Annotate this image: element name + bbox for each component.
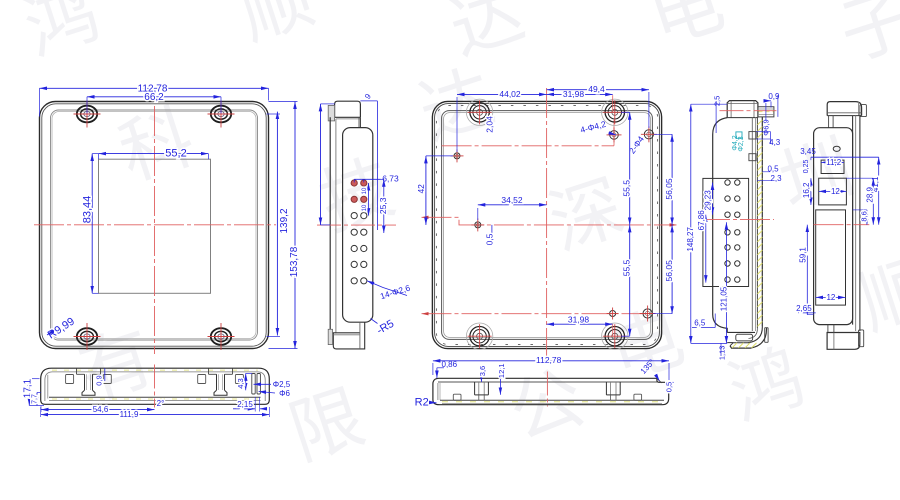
svg-text:25,3: 25,3: [378, 197, 388, 214]
svg-text:55,2: 55,2: [165, 148, 186, 160]
svg-text:Φ6: Φ6: [279, 389, 290, 398]
svg-text:Φ2,3: Φ2,3: [738, 136, 745, 151]
svg-text:限: 限: [280, 377, 373, 475]
svg-text:6,5: 6,5: [694, 319, 706, 328]
svg-text:12,1: 12,1: [497, 363, 506, 378]
svg-text:-R5: -R5: [375, 318, 396, 337]
svg-text:10: 10: [362, 187, 368, 194]
svg-text:0,9: 0,9: [768, 92, 780, 101]
svg-text:9: 9: [363, 92, 373, 101]
svg-text:0,25: 0,25: [803, 159, 810, 173]
svg-text:28,9: 28,9: [866, 186, 875, 202]
svg-text:4,3: 4,3: [769, 138, 781, 147]
svg-text:达: 达: [440, 0, 533, 70]
svg-text:2°: 2°: [157, 399, 165, 408]
svg-text:8,6: 8,6: [859, 211, 868, 221]
svg-text:深: 深: [540, 167, 633, 265]
svg-text:34,52: 34,52: [501, 195, 523, 205]
svg-text:子: 子: [830, 0, 900, 75]
svg-text:153,78: 153,78: [289, 246, 300, 277]
svg-text:2,15: 2,15: [237, 400, 253, 409]
svg-text:59,1: 59,1: [799, 247, 808, 263]
svg-text:公: 公: [500, 357, 593, 455]
svg-text:112,78: 112,78: [536, 355, 562, 365]
svg-text:67,86: 67,86: [697, 210, 706, 231]
svg-text:83,44: 83,44: [82, 196, 94, 224]
svg-text:111,9: 111,9: [120, 410, 139, 419]
svg-text:31,98: 31,98: [563, 89, 585, 99]
svg-text:2,3: 2,3: [770, 174, 782, 183]
svg-text:0,5: 0,5: [665, 382, 674, 392]
svg-text:29,23: 29,23: [703, 190, 712, 211]
svg-text:10: 10: [362, 204, 368, 211]
svg-text:16,2: 16,2: [802, 182, 811, 198]
svg-text:66,2: 66,2: [144, 92, 164, 103]
svg-text:3,6: 3,6: [478, 366, 487, 376]
svg-text:14-Φ2,6: 14-Φ2,6: [379, 283, 412, 302]
svg-text:55,5: 55,5: [622, 180, 632, 197]
svg-text:3,45: 3,45: [800, 147, 816, 156]
svg-text:2,04: 2,04: [485, 116, 495, 133]
svg-text:44,02: 44,02: [499, 89, 521, 99]
svg-text:56,05: 56,05: [664, 260, 674, 282]
svg-text:0,9: 0,9: [95, 375, 104, 385]
svg-text:121,05: 121,05: [719, 286, 728, 311]
svg-text:49,4: 49,4: [588, 84, 605, 94]
svg-text:鸿: 鸿: [720, 337, 813, 435]
svg-text:31,98: 31,98: [568, 315, 590, 325]
svg-text:42: 42: [416, 184, 426, 194]
svg-text:0,5: 0,5: [767, 164, 779, 173]
svg-text:鸿: 鸿: [15, 0, 108, 70]
svg-text:6,73: 6,73: [382, 174, 399, 184]
svg-text:7,7: 7,7: [31, 394, 38, 404]
svg-text:R2: R2: [415, 396, 429, 408]
svg-text:4-Φ4,2: 4-Φ4,2: [579, 119, 607, 135]
svg-text:56,05: 56,05: [664, 178, 674, 200]
svg-text:55,5: 55,5: [622, 259, 632, 276]
svg-text:2,65: 2,65: [796, 304, 812, 313]
svg-text:54,6: 54,6: [93, 405, 109, 414]
svg-text:顺: 顺: [850, 247, 900, 345]
svg-text:Φ6,9: Φ6,9: [761, 119, 770, 135]
svg-text:2,5: 2,5: [712, 96, 721, 106]
svg-text:139,2: 139,2: [279, 208, 290, 233]
svg-text:Φ2,5: Φ2,5: [273, 380, 291, 389]
svg-text:148,27: 148,27: [686, 227, 695, 252]
svg-text:12: 12: [831, 187, 840, 196]
svg-text:11,2: 11,2: [826, 158, 842, 167]
svg-text:顺: 顺: [230, 0, 323, 55]
svg-text:电: 电: [640, 0, 733, 60]
svg-text:12: 12: [826, 293, 835, 302]
svg-text:0,5: 0,5: [484, 233, 494, 245]
svg-text:4,3: 4,3: [236, 378, 245, 388]
svg-text:1,13: 1,13: [718, 345, 727, 360]
svg-text:圳: 圳: [770, 127, 863, 225]
